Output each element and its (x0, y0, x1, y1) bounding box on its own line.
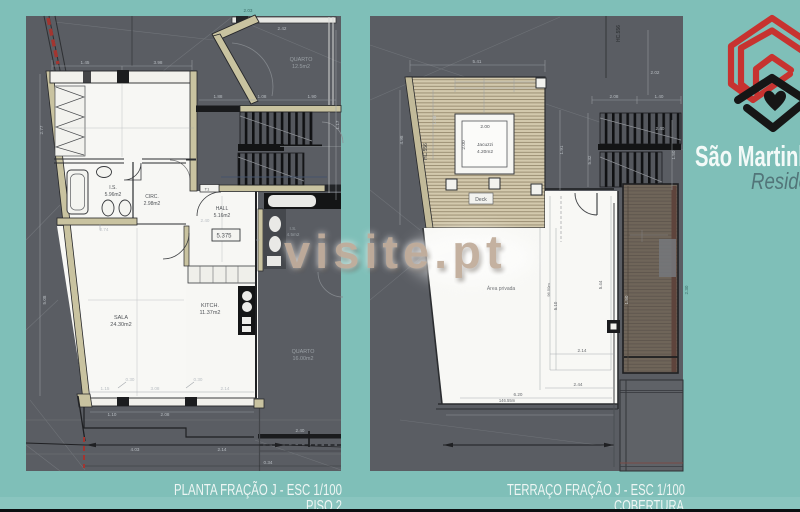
svg-text:2.00: 2.00 (480, 124, 490, 130)
svg-text:QUARTO: QUARTO (292, 349, 315, 355)
svg-text:4.20m2: 4.20m2 (477, 149, 493, 155)
svg-text:1.15: 1.15 (101, 386, 110, 391)
svg-text:2.98m2: 2.98m2 (144, 201, 161, 207)
svg-text:PLANTA FRAÇÃO J - ESC 1/100: PLANTA FRAÇÃO J - ESC 1/100 (174, 479, 342, 499)
svg-text:2.14: 2.14 (578, 348, 587, 353)
svg-text:0.34: 0.34 (264, 460, 273, 465)
svg-text:2.03: 2.03 (244, 8, 253, 13)
svg-text:1.08: 1.08 (258, 94, 267, 99)
svg-text:2.02: 2.02 (651, 70, 660, 75)
svg-text:HALL: HALL (216, 206, 229, 212)
svg-text:3.98: 3.98 (154, 60, 163, 65)
svg-text:4.98: 4.98 (399, 135, 404, 144)
svg-text:2.40: 2.40 (201, 218, 210, 223)
svg-text:12.5m2: 12.5m2 (292, 64, 310, 70)
svg-text:96.50m: 96.50m (546, 283, 551, 297)
svg-text:1.45: 1.45 (81, 60, 90, 65)
svg-text:6.20: 6.20 (514, 392, 523, 397)
svg-text:5.44: 5.44 (598, 280, 603, 289)
svg-text:3.08: 3.08 (151, 386, 160, 391)
svg-text:1.50: 1.50 (624, 295, 629, 304)
svg-text:5.41: 5.41 (473, 59, 482, 64)
svg-text:5.08: 5.08 (42, 295, 47, 304)
svg-text:HC.556: HC.556 (616, 25, 622, 42)
svg-text:11.37m2: 11.37m2 (200, 310, 221, 316)
svg-text:Residence: Residence (751, 168, 800, 194)
svg-text:I.S.: I.S. (109, 185, 117, 191)
svg-text:2.77: 2.77 (39, 125, 44, 134)
svg-text:1.10: 1.10 (108, 412, 117, 417)
svg-text:Área privada: Área privada (487, 285, 516, 292)
svg-text:0.30: 0.30 (126, 377, 135, 382)
svg-text:1.48: 1.48 (432, 115, 437, 124)
svg-text:5.10: 5.10 (553, 301, 558, 310)
svg-text:2.00: 2.00 (461, 140, 467, 150)
svg-text:CIRC.: CIRC. (145, 194, 159, 200)
svg-text:2.74: 2.74 (100, 227, 109, 232)
svg-text:KITCH.: KITCH. (201, 303, 220, 309)
svg-text:2.30: 2.30 (684, 285, 689, 294)
svg-text:1.50: 1.50 (671, 150, 676, 159)
svg-text:2.42: 2.42 (278, 26, 287, 31)
svg-text:1.88: 1.88 (214, 94, 223, 99)
svg-text:5.16m2: 5.16m2 (214, 213, 231, 219)
svg-text:2.44: 2.44 (574, 382, 583, 387)
svg-text:1.40: 1.40 (655, 94, 664, 99)
svg-text:2.40: 2.40 (656, 126, 665, 131)
svg-text:1.90: 1.90 (308, 94, 317, 99)
svg-text:2.08: 2.08 (161, 412, 170, 417)
svg-text:T1: T1 (205, 187, 210, 192)
svg-text:HC.556: HC.556 (423, 143, 429, 160)
svg-text:1.91: 1.91 (559, 145, 564, 154)
svg-text:TERRAÇO FRAÇÃO J - ESC 1/100: TERRAÇO FRAÇÃO J - ESC 1/100 (507, 479, 685, 499)
svg-text:visite.pt: visite.pt (284, 225, 507, 278)
svg-text:SALA: SALA (114, 315, 128, 321)
svg-text:QUARTO: QUARTO (290, 57, 313, 63)
svg-text:1.17: 1.17 (335, 120, 340, 129)
svg-text:Jacuzzi: Jacuzzi (477, 142, 493, 148)
svg-text:24.30m2: 24.30m2 (110, 322, 131, 328)
svg-text:5.32: 5.32 (587, 155, 592, 164)
svg-text:2.08: 2.08 (610, 94, 619, 99)
svg-text:Deck: Deck (475, 197, 487, 203)
svg-text:4.03: 4.03 (131, 447, 140, 452)
svg-text:16.00m2: 16.00m2 (293, 356, 314, 362)
svg-text:5.96m2: 5.96m2 (105, 192, 122, 198)
svg-text:2.14: 2.14 (218, 447, 227, 452)
svg-text:5.375: 5.375 (216, 234, 232, 240)
svg-text:2.14: 2.14 (221, 386, 230, 391)
svg-text:2.40: 2.40 (296, 428, 305, 433)
svg-text:0.30: 0.30 (194, 377, 203, 382)
svg-text:146.55m: 146.55m (499, 398, 516, 403)
